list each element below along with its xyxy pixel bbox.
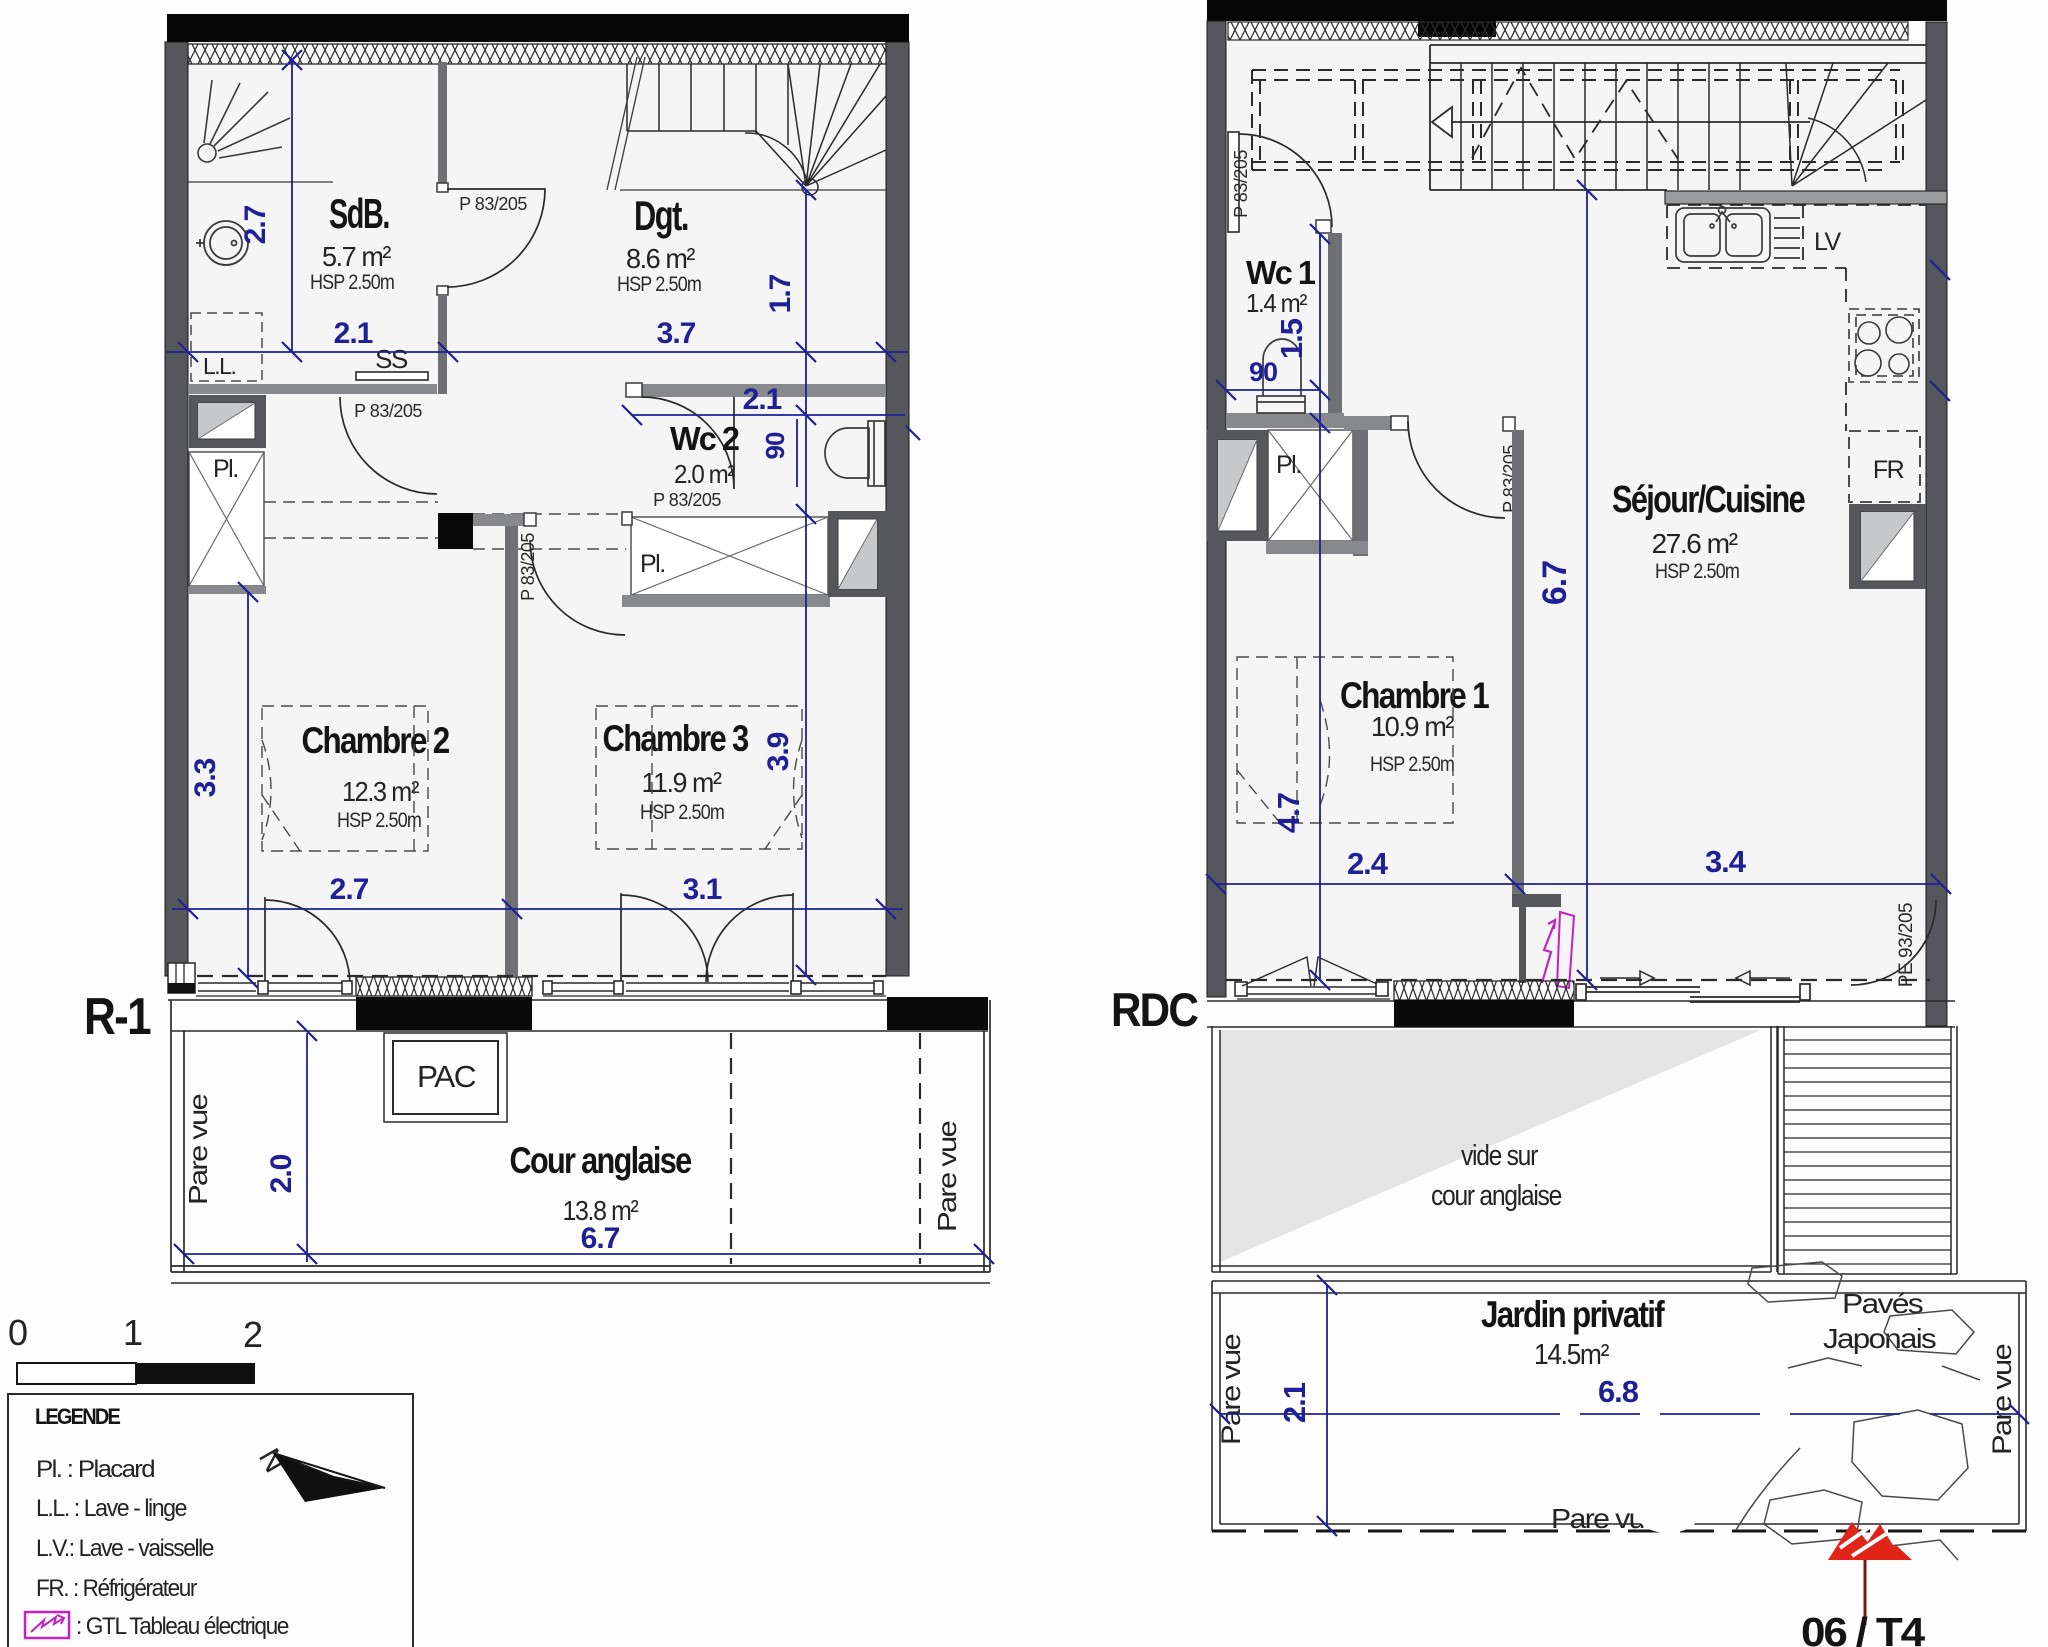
svg-text:HSP 2.50m: HSP 2.50m <box>1655 560 1739 583</box>
svg-text:3.3: 3.3 <box>189 758 222 797</box>
svg-text:P 83/205: P 83/205 <box>354 401 422 421</box>
svg-text:L.V.: Lave - vaisselle: L.V.: Lave - vaisselle <box>36 1535 214 1562</box>
svg-text:P 83/205: P 83/205 <box>518 533 538 601</box>
svg-text:6.8: 6.8 <box>1598 1374 1639 1409</box>
svg-text:14.5m²: 14.5m² <box>1534 1339 1610 1371</box>
svg-text:27.6 m²: 27.6 m² <box>1652 528 1738 559</box>
svg-text:2.1: 2.1 <box>743 383 782 416</box>
svg-text:3.7: 3.7 <box>657 317 696 350</box>
svg-text:1.4 m²: 1.4 m² <box>1246 288 1308 318</box>
svg-text:11.9 m²: 11.9 m² <box>642 767 722 798</box>
svg-text:2.4: 2.4 <box>1347 846 1389 881</box>
svg-text:: GTL Tableau électrique: : GTL Tableau électrique <box>76 1613 289 1640</box>
svg-text:2.0 m²: 2.0 m² <box>674 459 736 489</box>
svg-text:L.L. : Lave - linge: L.L. : Lave - linge <box>36 1495 187 1522</box>
svg-text:2.7: 2.7 <box>239 205 272 244</box>
svg-text:Wc 1: Wc 1 <box>1246 254 1316 291</box>
svg-text:PAC: PAC <box>417 1059 476 1094</box>
svg-text:HSP 2.50m: HSP 2.50m <box>617 273 701 296</box>
svg-text:2.1: 2.1 <box>334 317 373 350</box>
svg-text:RDC: RDC <box>1111 983 1198 1036</box>
svg-text:Japonais: Japonais <box>1823 1323 1936 1354</box>
svg-text:P 83/205: P 83/205 <box>1231 150 1251 218</box>
svg-text:06 / T4: 06 / T4 <box>1801 1609 1925 1647</box>
svg-text:Cour anglaise: Cour anglaise <box>510 1140 692 1181</box>
svg-text:Jardin privatif: Jardin privatif <box>1481 1294 1665 1335</box>
svg-text:5.7 m²: 5.7 m² <box>322 241 391 272</box>
svg-text:P 83/205: P 83/205 <box>459 194 527 214</box>
svg-text:2: 2 <box>243 1314 262 1355</box>
svg-text:Dgt.: Dgt. <box>634 192 688 239</box>
svg-text:Pl.: Pl. <box>213 455 238 483</box>
svg-text:PE 93/205: PE 93/205 <box>1896 903 1917 987</box>
svg-text:Pare vue: Pare vue <box>1216 1334 1246 1445</box>
svg-text:Wc 2: Wc 2 <box>670 420 740 457</box>
svg-text:Pare vue: Pare vue <box>1987 1344 2017 1455</box>
svg-text:vide sur: vide sur <box>1461 1140 1539 1172</box>
svg-text:Pl.: Pl. <box>1276 451 1301 479</box>
svg-text:P 83/205: P 83/205 <box>653 490 721 510</box>
svg-text:Pl.: Pl. <box>640 550 665 578</box>
svg-text:2.0: 2.0 <box>265 1154 298 1193</box>
svg-text:HSP 2.50m: HSP 2.50m <box>310 271 394 294</box>
svg-text:3.4: 3.4 <box>1705 844 1747 879</box>
svg-text:2.7: 2.7 <box>330 873 369 906</box>
svg-text:2.1: 2.1 <box>1277 1382 1312 1423</box>
svg-text:1: 1 <box>123 1312 142 1353</box>
svg-text:6.7: 6.7 <box>581 1222 620 1255</box>
svg-text:90: 90 <box>1249 357 1277 387</box>
svg-text:8.6 m²: 8.6 m² <box>626 243 695 274</box>
svg-text:Pare vue: Pare vue <box>932 1121 962 1232</box>
svg-text:6.7: 6.7 <box>1536 561 1574 605</box>
svg-text:Chambre 1: Chambre 1 <box>1340 675 1489 716</box>
svg-text:R-1: R-1 <box>84 988 151 1046</box>
svg-text:LV: LV <box>1814 228 1842 256</box>
svg-text:Pl. : Placard: Pl. : Placard <box>36 1456 154 1483</box>
svg-text:FR: FR <box>1873 456 1904 484</box>
svg-text:3.1: 3.1 <box>683 873 722 906</box>
svg-text:1.7: 1.7 <box>764 274 797 313</box>
svg-text:3.9: 3.9 <box>762 732 795 771</box>
svg-text:0: 0 <box>8 1312 27 1353</box>
svg-text:FR. : Réfrigérateur: FR. : Réfrigérateur <box>36 1575 197 1602</box>
svg-text:4.7: 4.7 <box>1271 793 1306 833</box>
svg-text:SdB.: SdB. <box>329 190 389 237</box>
svg-text:LEGENDE: LEGENDE <box>35 1404 120 1429</box>
svg-text:1.5: 1.5 <box>1274 318 1309 359</box>
svg-text:Séjour/Cuisine: Séjour/Cuisine <box>1612 479 1805 521</box>
svg-text:HSP 2.50m: HSP 2.50m <box>1370 753 1454 776</box>
svg-text:cour anglaise: cour anglaise <box>1431 1180 1561 1212</box>
svg-text:12.3 m²: 12.3 m² <box>342 776 419 807</box>
svg-text:L.L.: L.L. <box>203 353 235 379</box>
svg-text:Chambre 3: Chambre 3 <box>603 718 749 759</box>
svg-text:Pare vue: Pare vue <box>183 1094 213 1205</box>
svg-text:10.9 m²: 10.9 m² <box>1371 711 1454 742</box>
svg-text:HSP 2.50m: HSP 2.50m <box>337 809 421 832</box>
svg-text:90: 90 <box>760 432 790 459</box>
svg-text:SS: SS <box>375 344 408 374</box>
